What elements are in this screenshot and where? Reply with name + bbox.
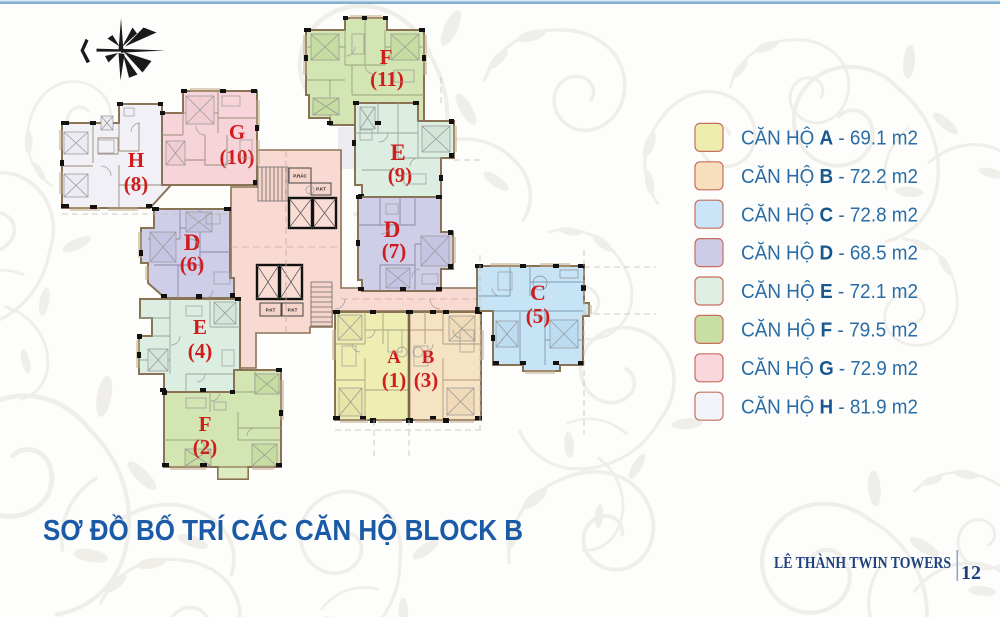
- svg-text:(3): (3): [414, 368, 439, 392]
- svg-text:CĂN HỘ H - 81.9 m2: CĂN HỘ H - 81.9 m2: [741, 395, 918, 418]
- svg-text:(6): (6): [180, 252, 205, 276]
- svg-text:12: 12: [961, 562, 981, 584]
- svg-text:CĂN HỘ B - 72.2 m2: CĂN HỘ B - 72.2 m2: [741, 165, 918, 188]
- svg-text:CĂN HỘ G - 72.9 m2: CĂN HỘ G - 72.9 m2: [741, 357, 918, 380]
- svg-text:(7): (7): [382, 239, 407, 263]
- svg-text:(8): (8): [124, 172, 149, 196]
- svg-text:CĂN HỘ C - 72.8 m2: CĂN HỘ C - 72.8 m2: [741, 203, 918, 226]
- svg-text:E: E: [390, 140, 405, 165]
- svg-text:P.KT: P.KT: [266, 308, 276, 313]
- svg-text:H: H: [128, 148, 144, 172]
- svg-text:(2): (2): [193, 435, 218, 459]
- svg-text:G: G: [229, 120, 245, 144]
- svg-text:CĂN HỘ F - 79.5 m2: CĂN HỘ F - 79.5 m2: [741, 319, 918, 342]
- svg-text:A: A: [387, 347, 401, 368]
- svg-text:C: C: [530, 280, 546, 305]
- svg-text:P.RÁC: P.RÁC: [293, 173, 307, 179]
- svg-text:F: F: [199, 412, 212, 436]
- svg-text:LÊ THÀNH TWIN TOWERS: LÊ THÀNH TWIN TOWERS: [774, 553, 951, 572]
- svg-text:(4): (4): [188, 339, 213, 363]
- svg-text:P.KT: P.KT: [288, 308, 298, 313]
- svg-text:SƠ ĐỒ BỐ TRÍ CÁC CĂN HỘ BLOCK: SƠ ĐỒ BỐ TRÍ CÁC CĂN HỘ BLOCK B: [43, 513, 523, 547]
- svg-text:F: F: [380, 45, 393, 69]
- svg-text:(9): (9): [388, 163, 413, 187]
- svg-text:CĂN HỘ A - 69.1 m2: CĂN HỘ A - 69.1 m2: [741, 127, 918, 150]
- svg-text:CĂN HỘ E - 72.1 m2: CĂN HỘ E - 72.1 m2: [741, 280, 918, 303]
- svg-text:(1): (1): [382, 368, 407, 392]
- svg-text:(11): (11): [370, 67, 404, 91]
- svg-text:CĂN HỘ D - 68.5 m2: CĂN HỘ D - 68.5 m2: [741, 242, 918, 265]
- svg-text:E: E: [193, 315, 207, 339]
- svg-text:P.KT: P.KT: [316, 187, 326, 192]
